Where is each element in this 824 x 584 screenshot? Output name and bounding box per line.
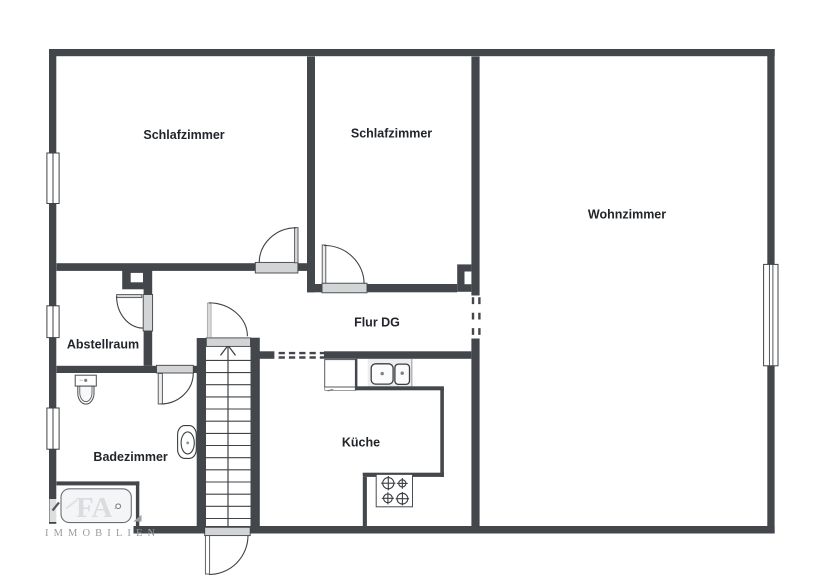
svg-text:Badezimmer: Badezimmer	[93, 450, 167, 464]
svg-text:Schlafzimmer: Schlafzimmer	[143, 128, 224, 142]
svg-text:Flur DG: Flur DG	[354, 316, 400, 330]
svg-text:Schlafzimmer: Schlafzimmer	[351, 127, 432, 141]
svg-text:IMMOBILIEN: IMMOBILIEN	[45, 528, 160, 539]
svg-text:Abstellraum: Abstellraum	[67, 338, 139, 352]
svg-text:FA: FA	[76, 492, 113, 524]
svg-text:Küche: Küche	[342, 436, 380, 450]
svg-text:Wohnzimmer: Wohnzimmer	[588, 208, 666, 222]
